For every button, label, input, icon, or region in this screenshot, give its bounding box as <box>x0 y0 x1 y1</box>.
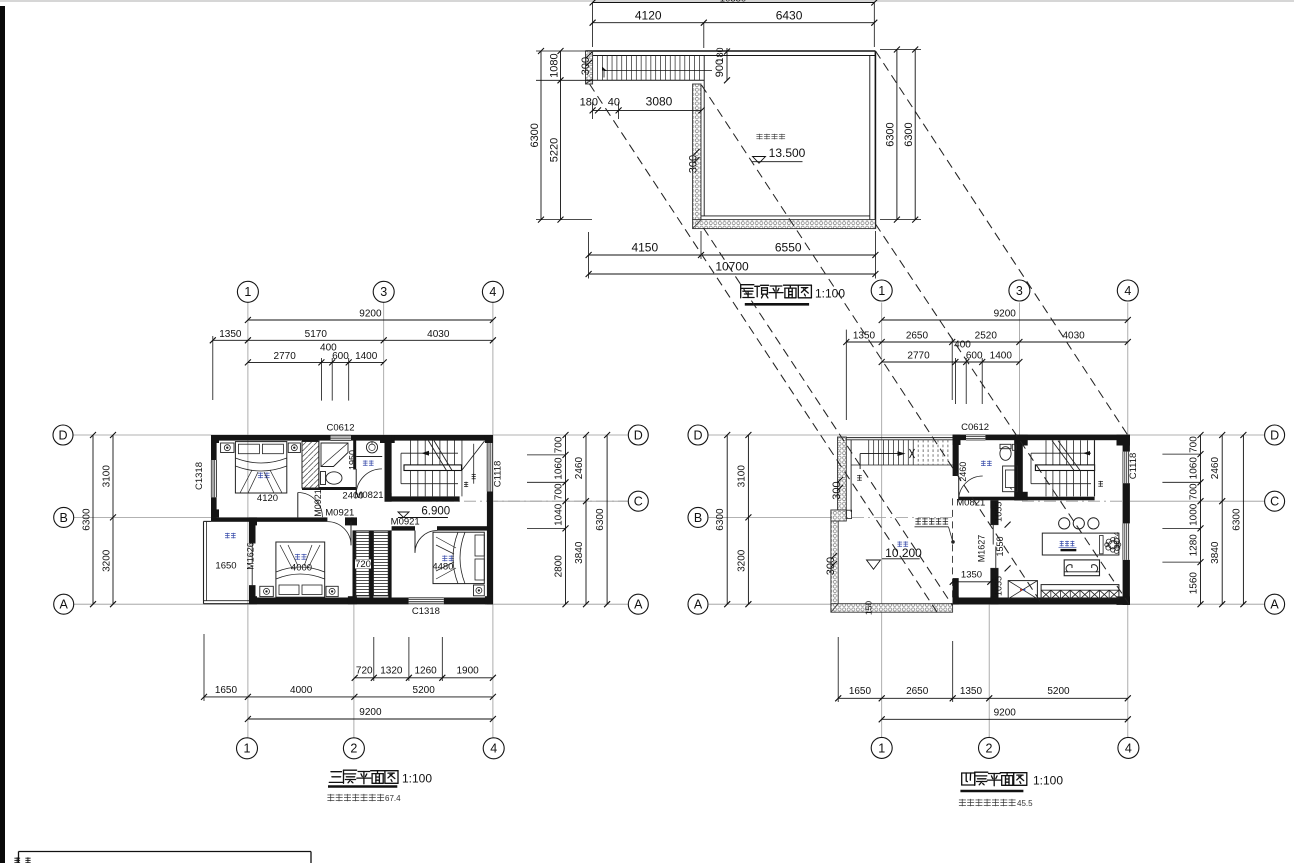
svg-text:6300: 6300 <box>885 122 897 146</box>
svg-text:1560: 1560 <box>1189 572 1200 595</box>
svg-text:1400: 1400 <box>990 351 1013 362</box>
svg-text:1: 1 <box>878 284 885 298</box>
svg-text:3080: 3080 <box>646 95 673 109</box>
svg-text:4: 4 <box>1124 284 1131 298</box>
svg-text:1320: 1320 <box>380 665 403 676</box>
svg-text:4: 4 <box>1125 741 1132 755</box>
svg-text:180: 180 <box>580 97 598 109</box>
svg-text:3100: 3100 <box>102 465 113 488</box>
svg-text:1350: 1350 <box>219 329 242 340</box>
svg-text:4030: 4030 <box>1062 331 1085 342</box>
svg-text:1650: 1650 <box>215 561 236 572</box>
svg-text:6430: 6430 <box>776 9 803 23</box>
svg-text:1:100: 1:100 <box>1033 774 1063 788</box>
svg-text:700: 700 <box>554 483 565 500</box>
svg-text:B: B <box>60 511 68 525</box>
svg-text:720: 720 <box>355 559 371 570</box>
svg-text:2650: 2650 <box>906 331 929 342</box>
svg-text:1650: 1650 <box>849 686 872 697</box>
svg-text:A: A <box>634 598 643 612</box>
svg-text:2770: 2770 <box>274 351 297 362</box>
svg-text:2650: 2650 <box>906 686 929 697</box>
svg-text:3: 3 <box>1016 284 1023 298</box>
svg-text:6300: 6300 <box>1231 508 1242 531</box>
svg-text:1:100: 1:100 <box>402 772 432 786</box>
svg-text:C1118: C1118 <box>1128 453 1139 480</box>
svg-text:A: A <box>1270 598 1279 612</box>
svg-text:1400: 1400 <box>355 351 378 362</box>
svg-text:M0921: M0921 <box>313 489 323 517</box>
svg-text:2460: 2460 <box>574 457 585 480</box>
svg-text:2770: 2770 <box>907 351 930 362</box>
svg-text:2800: 2800 <box>554 555 565 578</box>
svg-text:1280: 1280 <box>1189 534 1200 557</box>
svg-text:M0821: M0821 <box>956 498 985 509</box>
svg-text:6300: 6300 <box>529 123 541 147</box>
svg-text:4120: 4120 <box>257 493 278 504</box>
svg-text:1:100: 1:100 <box>815 287 845 301</box>
svg-text:4000: 4000 <box>290 685 313 696</box>
svg-text:C1118: C1118 <box>493 461 504 488</box>
svg-text:C1318: C1318 <box>194 462 205 490</box>
svg-text:700: 700 <box>1189 436 1200 453</box>
svg-text:1055: 1055 <box>994 576 1004 596</box>
svg-text:5200: 5200 <box>1047 686 1070 697</box>
svg-text:D: D <box>1270 428 1279 442</box>
svg-text:1260: 1260 <box>414 665 437 676</box>
svg-text:A: A <box>60 598 69 612</box>
svg-text:400: 400 <box>320 343 337 354</box>
svg-text:1: 1 <box>244 285 251 299</box>
svg-text:9200: 9200 <box>994 309 1017 320</box>
svg-text:9200: 9200 <box>359 309 382 320</box>
svg-text:13.500: 13.500 <box>769 146 806 160</box>
svg-text:6550: 6550 <box>775 241 802 255</box>
svg-text:1000: 1000 <box>1189 503 1200 526</box>
svg-text:700: 700 <box>1189 483 1200 500</box>
svg-text:1950: 1950 <box>348 450 358 470</box>
svg-text:D: D <box>693 428 702 442</box>
svg-text:C: C <box>634 495 643 509</box>
svg-text:4120: 4120 <box>635 9 662 23</box>
svg-text:2520: 2520 <box>975 331 998 342</box>
svg-text:A: A <box>694 598 703 612</box>
svg-text:M1627: M1627 <box>977 535 987 563</box>
svg-text:1: 1 <box>244 742 251 756</box>
svg-text:6300: 6300 <box>715 508 726 531</box>
svg-text:900: 900 <box>714 59 726 77</box>
svg-text:1: 1 <box>878 741 885 755</box>
svg-text:3840: 3840 <box>1210 541 1221 564</box>
svg-text:D: D <box>634 428 643 442</box>
svg-text:10550: 10550 <box>720 0 746 5</box>
svg-text:2: 2 <box>350 742 357 756</box>
svg-text:45.5: 45.5 <box>1017 799 1033 808</box>
svg-text:M0921: M0921 <box>325 508 354 519</box>
svg-text:1060: 1060 <box>554 457 565 480</box>
svg-text:4: 4 <box>490 742 497 756</box>
svg-text:1060: 1060 <box>1189 457 1200 480</box>
svg-text:M0821: M0821 <box>354 490 383 501</box>
svg-text:3840: 3840 <box>574 541 585 564</box>
svg-text:1900: 1900 <box>456 665 479 676</box>
svg-text:4150: 4150 <box>631 241 658 255</box>
svg-text:6300: 6300 <box>595 508 606 531</box>
svg-text:4030: 4030 <box>427 329 450 340</box>
svg-text:3100: 3100 <box>736 465 747 488</box>
svg-text:C1318: C1318 <box>412 606 440 617</box>
svg-text:1040: 1040 <box>554 503 565 526</box>
svg-text:5220: 5220 <box>549 138 561 162</box>
svg-text:700: 700 <box>554 436 565 453</box>
svg-text:3: 3 <box>380 285 387 299</box>
svg-text:9200: 9200 <box>994 707 1017 718</box>
svg-text:10.200: 10.200 <box>885 546 922 560</box>
svg-text:C0612: C0612 <box>961 422 989 433</box>
svg-text:300: 300 <box>825 557 837 575</box>
svg-text:5170: 5170 <box>305 329 328 340</box>
svg-text:C: C <box>1270 495 1279 509</box>
svg-text:1080: 1080 <box>549 53 561 77</box>
svg-text:1350: 1350 <box>960 686 983 697</box>
svg-text:C0612: C0612 <box>327 423 355 434</box>
svg-text:300: 300 <box>688 155 700 173</box>
svg-text:67.4: 67.4 <box>385 794 401 803</box>
svg-text:9200: 9200 <box>359 707 382 718</box>
svg-text:1650: 1650 <box>215 685 238 696</box>
svg-text:6.900: 6.900 <box>421 505 450 517</box>
svg-text:D: D <box>58 428 67 442</box>
svg-text:1350: 1350 <box>961 570 982 581</box>
svg-text:2460: 2460 <box>1210 457 1221 480</box>
svg-text:720: 720 <box>356 665 373 676</box>
svg-text:600: 600 <box>966 351 983 362</box>
svg-text:6300: 6300 <box>82 508 93 531</box>
svg-text:1055: 1055 <box>994 502 1004 522</box>
svg-text:6300: 6300 <box>903 122 915 146</box>
svg-text:40: 40 <box>608 97 620 109</box>
svg-text:2: 2 <box>986 741 993 755</box>
svg-text:150: 150 <box>864 601 874 615</box>
svg-text:3200: 3200 <box>102 549 113 572</box>
svg-text:B: B <box>694 511 702 525</box>
svg-text:M0921: M0921 <box>391 517 420 528</box>
svg-text:5200: 5200 <box>413 685 436 696</box>
svg-text:3200: 3200 <box>736 549 747 572</box>
svg-text:4: 4 <box>489 285 496 299</box>
svg-text:M1626: M1626 <box>246 542 256 570</box>
